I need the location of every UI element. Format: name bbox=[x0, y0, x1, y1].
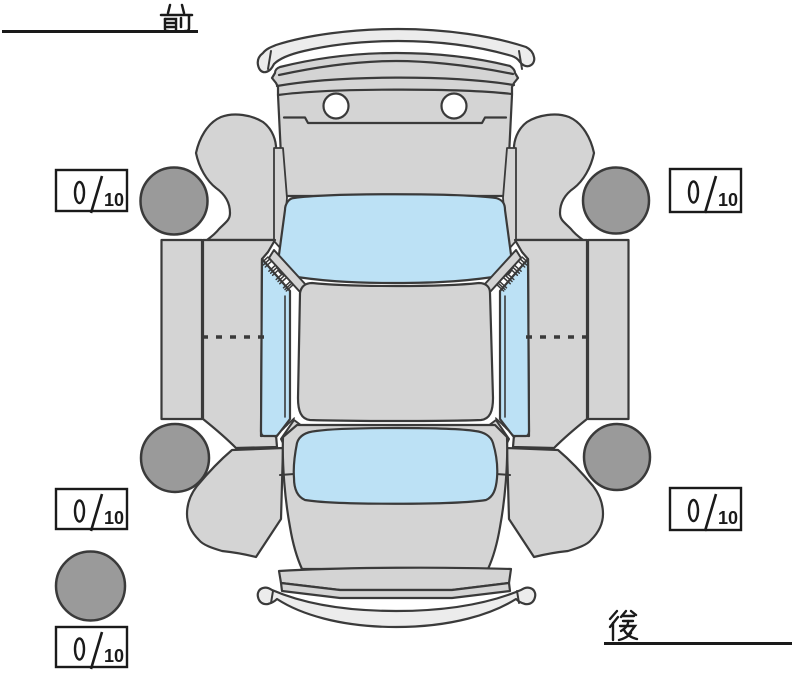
svg-text:10: 10 bbox=[104, 190, 124, 210]
svg-text:10: 10 bbox=[718, 508, 738, 528]
svg-text:10: 10 bbox=[718, 190, 738, 210]
svg-text:10: 10 bbox=[104, 508, 124, 528]
svg-text:10: 10 bbox=[104, 646, 124, 666]
